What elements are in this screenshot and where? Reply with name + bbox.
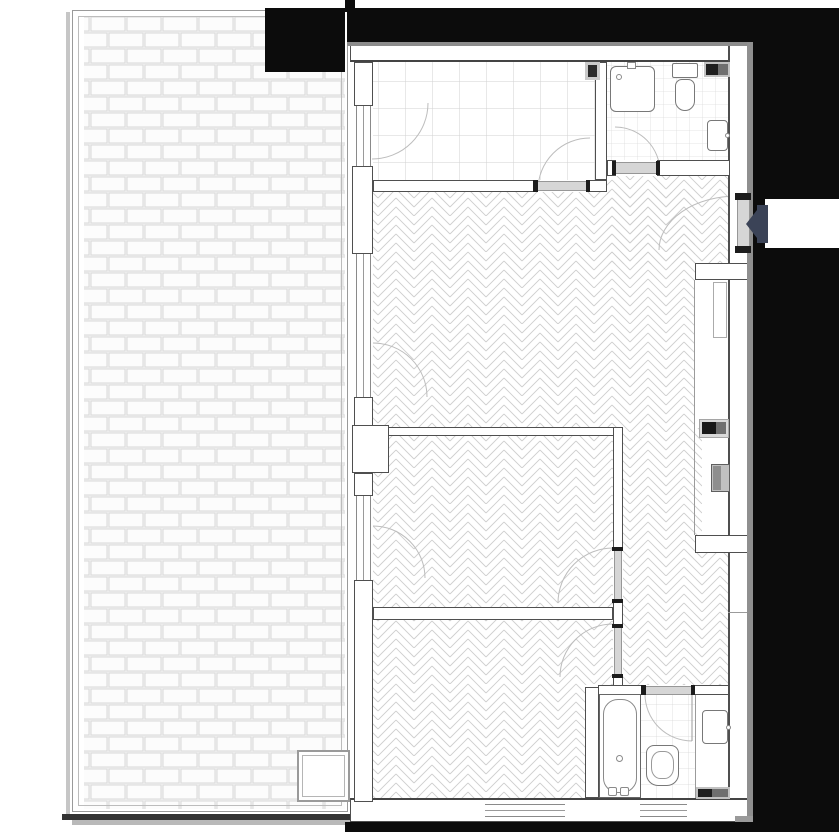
threshold-cap	[656, 161, 660, 175]
kitchen-vent-dark	[588, 65, 597, 77]
niche-pier-bottom	[695, 535, 753, 553]
bathroom-bottom-window	[640, 804, 687, 817]
kitchen-south-wall	[373, 180, 537, 192]
vent-dark	[706, 64, 718, 75]
terrace-inner-curb	[78, 16, 342, 806]
radiator-mid	[712, 789, 728, 797]
riser-duct	[713, 282, 727, 338]
electrical-panel	[699, 419, 729, 438]
hall-wall-upper	[613, 427, 623, 550]
kitchen-south-wall-end	[588, 180, 607, 192]
niche-face-line	[694, 280, 695, 535]
kitchen-door-threshold	[537, 181, 588, 191]
shower-valve	[627, 62, 636, 69]
threshold-cap	[612, 161, 616, 175]
threshold-cap	[612, 547, 623, 551]
bathtub-inner	[603, 699, 637, 793]
threshold-cap	[533, 180, 538, 192]
top-wall	[350, 45, 753, 62]
living-bedroom1-wall	[388, 427, 623, 436]
bathtub-tap-1	[608, 787, 617, 796]
threshold-cap	[735, 193, 751, 200]
left-wall-pier-1	[354, 62, 373, 106]
bathtub-tap-2	[620, 787, 629, 796]
terrace-bottom-shadow	[72, 820, 354, 825]
service-fixture	[711, 464, 730, 492]
left-wall-pier-4	[354, 473, 373, 496]
kitchen-floor	[373, 62, 595, 180]
top-wall-shadow	[347, 42, 753, 46]
service-fixture-shade	[713, 466, 721, 490]
shower-drain	[616, 74, 622, 80]
kitchen-vent	[585, 62, 600, 80]
left-wall-pier-2	[352, 166, 373, 254]
bathroom-bottom-north-wall2	[693, 685, 729, 695]
washbasin-bottom-tap	[726, 725, 731, 730]
bathroom-bottom-west-wall	[585, 687, 599, 798]
exterior-mass-bottom	[345, 822, 757, 832]
panel-dark	[702, 422, 716, 434]
exterior-mass-top-left	[265, 8, 345, 72]
left-wall-pier-3	[354, 397, 373, 427]
threshold-cap	[586, 180, 590, 192]
kitchen-terrace-door	[356, 106, 371, 166]
hall-wall-mid	[613, 600, 623, 627]
toilet-tank-top	[672, 63, 698, 78]
left-wall-pier-5	[354, 580, 373, 802]
washbasin-bottom	[702, 710, 728, 744]
threshold-cap	[612, 674, 623, 678]
shower-tray	[610, 66, 655, 112]
duct-vent-top	[704, 62, 730, 77]
bedroom1-bedroom2-wall	[373, 607, 613, 620]
radiator-dark	[698, 789, 712, 797]
exterior-mass-top	[347, 8, 839, 42]
bedroom2-window	[485, 804, 565, 817]
panel-mid	[716, 422, 726, 434]
entrance-arrow-icon	[746, 210, 757, 238]
entrance-arrow-body	[757, 205, 768, 243]
entrance-notch	[765, 199, 839, 248]
terrace-edge-shadow	[66, 12, 70, 815]
chimney-pier	[352, 425, 389, 473]
toilet-bowl-top	[675, 79, 695, 111]
washbasin-tap	[725, 133, 730, 138]
threshold-cap	[691, 685, 695, 695]
niche-pier-top	[695, 263, 753, 280]
bathroom-bottom-door-threshold	[645, 686, 693, 695]
exterior-mass-right	[753, 42, 839, 832]
threshold-cap	[612, 599, 623, 603]
floor-plan-canvas	[0, 0, 839, 839]
threshold-cap	[612, 624, 623, 628]
bedroom2-door-threshold	[614, 627, 622, 675]
radiator-bottom	[696, 787, 730, 799]
vent-mid	[718, 64, 728, 75]
bedroom1-terrace-door	[356, 496, 371, 580]
bedroom1-door-threshold	[614, 550, 622, 600]
threshold-cap	[641, 685, 646, 695]
bathroom-top-door-threshold	[615, 162, 657, 174]
terrace-drain-inner	[302, 755, 345, 797]
bathroom-top-south-wall2	[657, 160, 730, 176]
living-terrace-door	[356, 254, 371, 397]
threshold-cap	[735, 246, 751, 253]
toilet-bottom-bowl	[651, 751, 674, 779]
bathtub-drain	[616, 755, 623, 762]
